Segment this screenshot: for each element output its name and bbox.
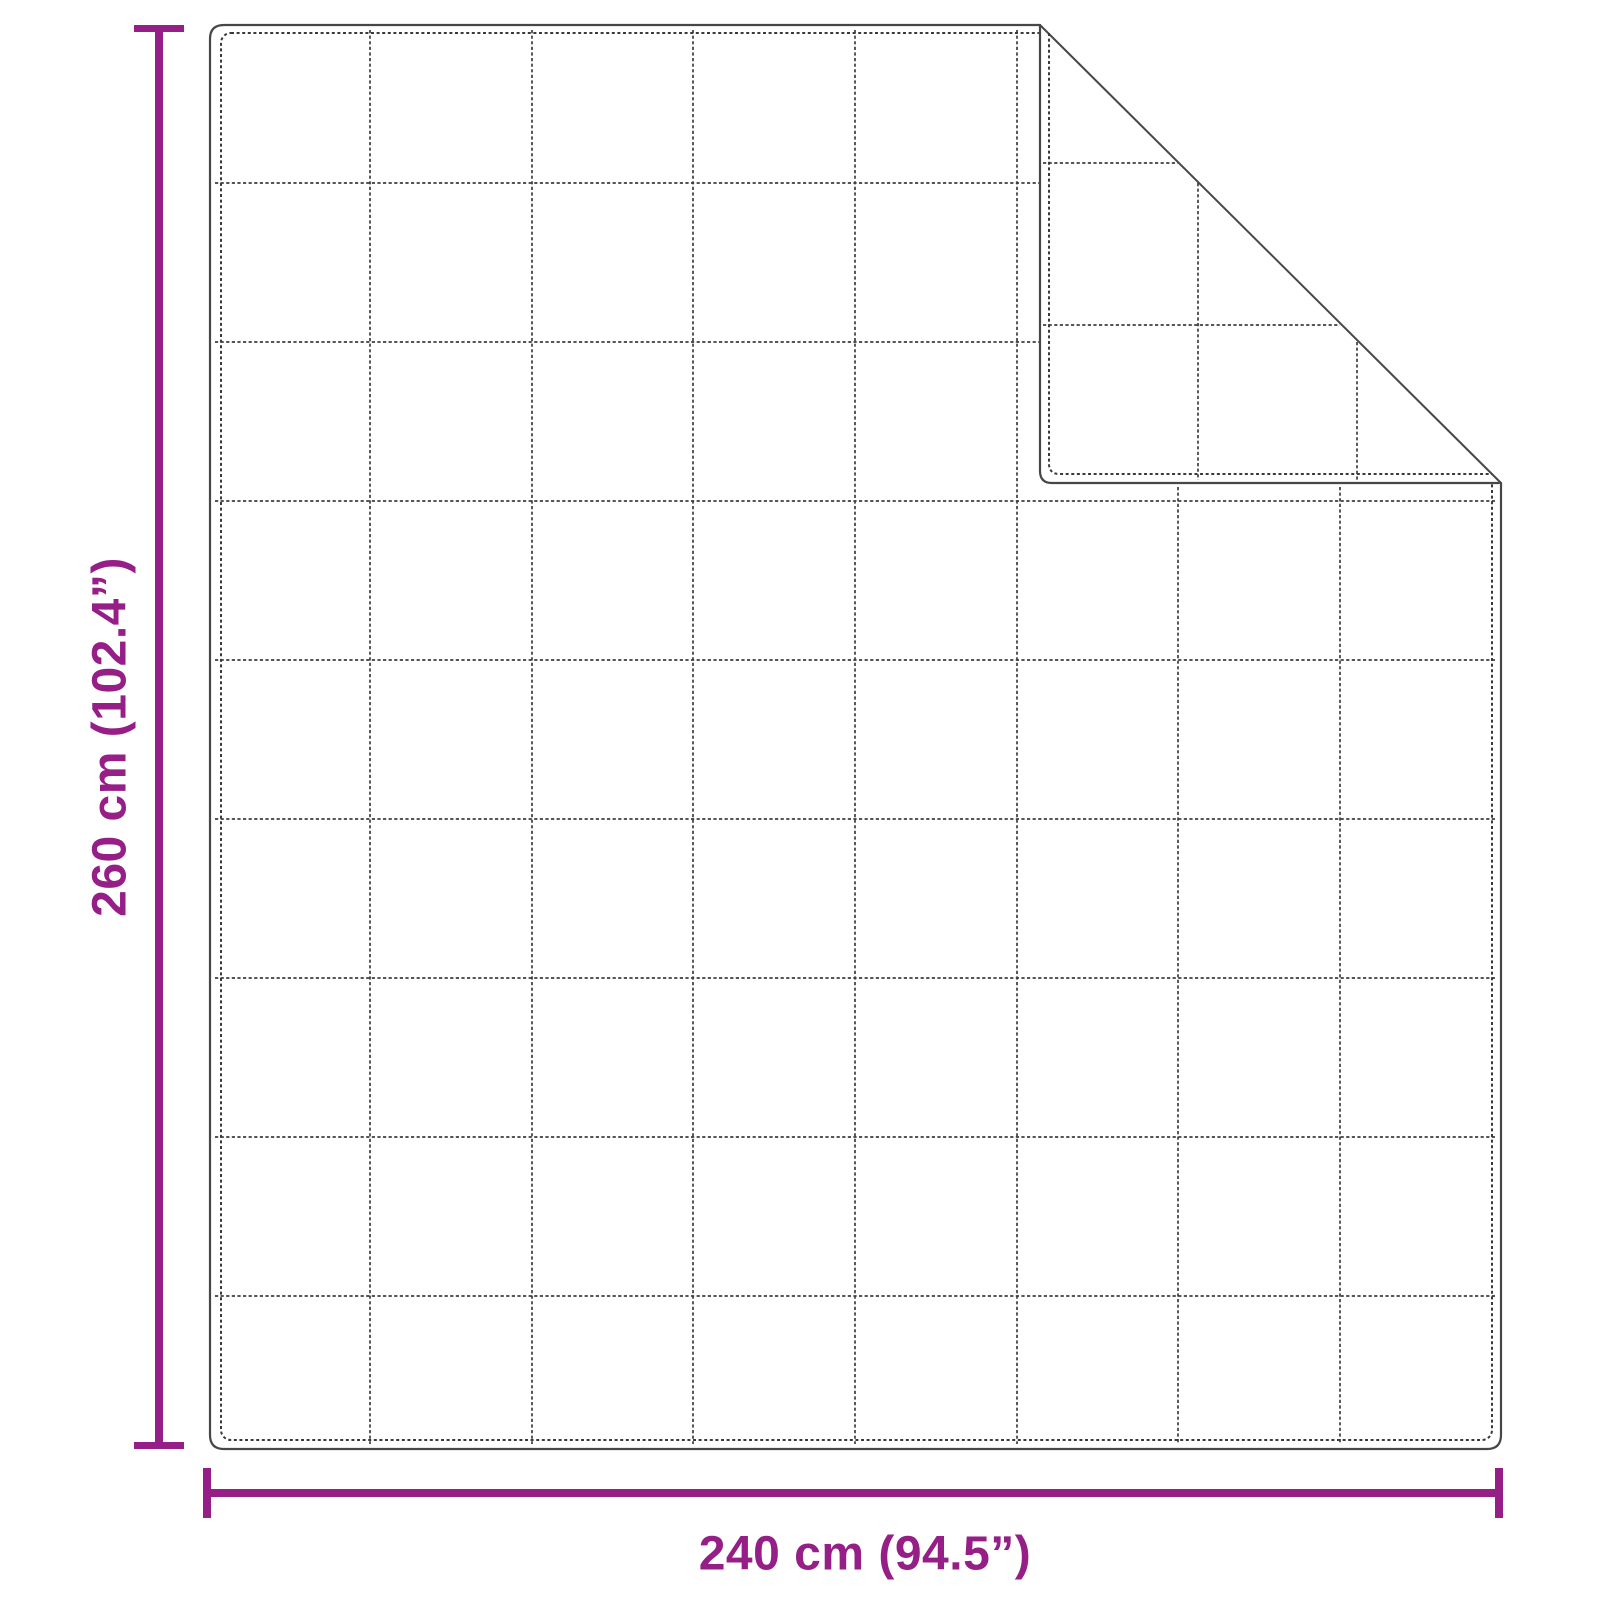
blanket: [210, 25, 1501, 1449]
horizontal-dimension-label: 240 cm (94.5”): [699, 1528, 1032, 1581]
blanket-diagram-svg: 260 cm (102.4”) 240 cm (94.5”): [0, 0, 1600, 1600]
vertical-dimension-line: [155, 25, 163, 1449]
vertical-dimension-cap-top: [134, 25, 184, 32]
folded-corner: [1040, 25, 1501, 483]
product-dimension-diagram: 260 cm (102.4”) 240 cm (94.5”): [0, 0, 1600, 1600]
quilt-grid: [215, 30, 1496, 1444]
fold-crease-line: [1040, 25, 1501, 483]
horizontal-dimension-cap-left: [203, 1468, 211, 1518]
vertical-dimension-label: 260 cm (102.4”): [84, 557, 137, 917]
folded-corner-grid: [1043, 163, 1357, 480]
vertical-dimension: 260 cm (102.4”): [84, 25, 185, 1449]
horizontal-dimension: 240 cm (94.5”): [203, 1468, 1503, 1581]
vertical-dimension-cap-bottom: [134, 1442, 184, 1449]
horizontal-dimension-line: [207, 1489, 1499, 1497]
blanket-stitch-inner: [221, 33, 1492, 1440]
horizontal-dimension-cap-right: [1495, 1468, 1503, 1518]
